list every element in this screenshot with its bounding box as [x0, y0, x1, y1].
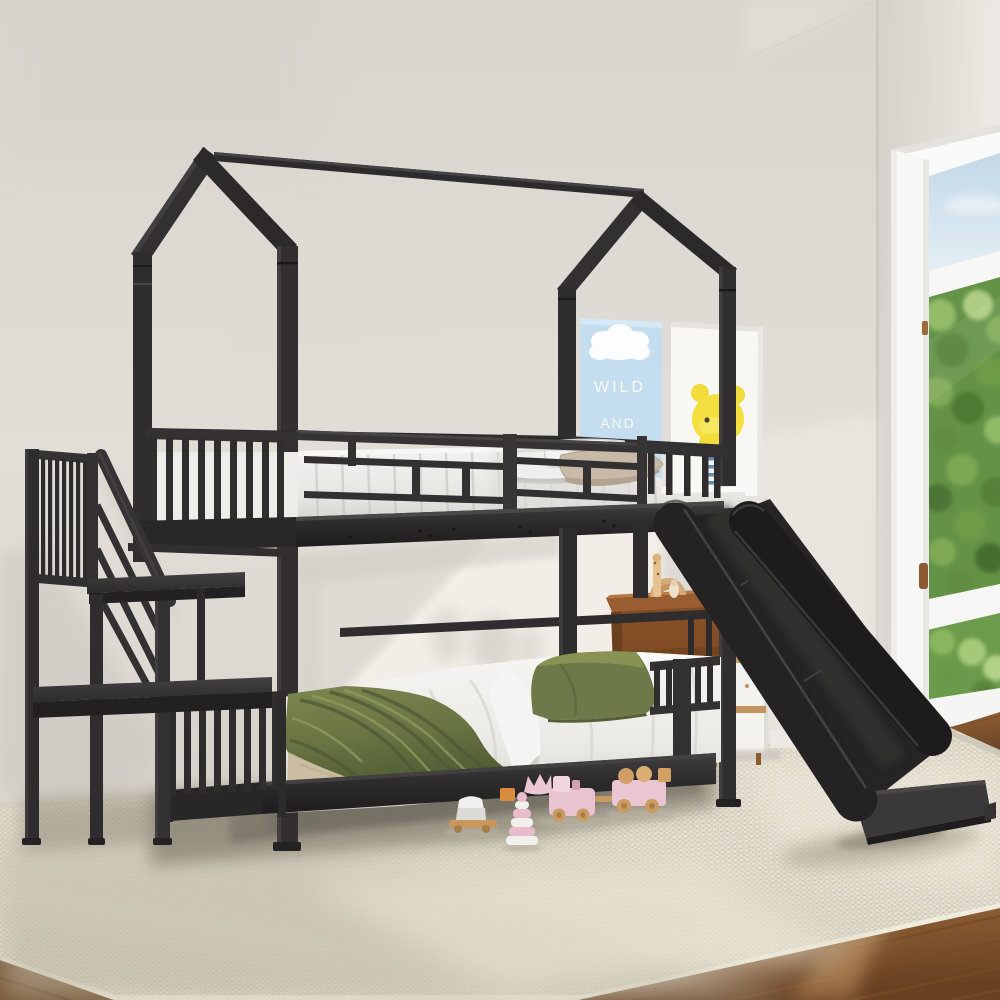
svg-text:AND: AND	[600, 415, 636, 431]
svg-text:WILD: WILD	[594, 379, 646, 396]
